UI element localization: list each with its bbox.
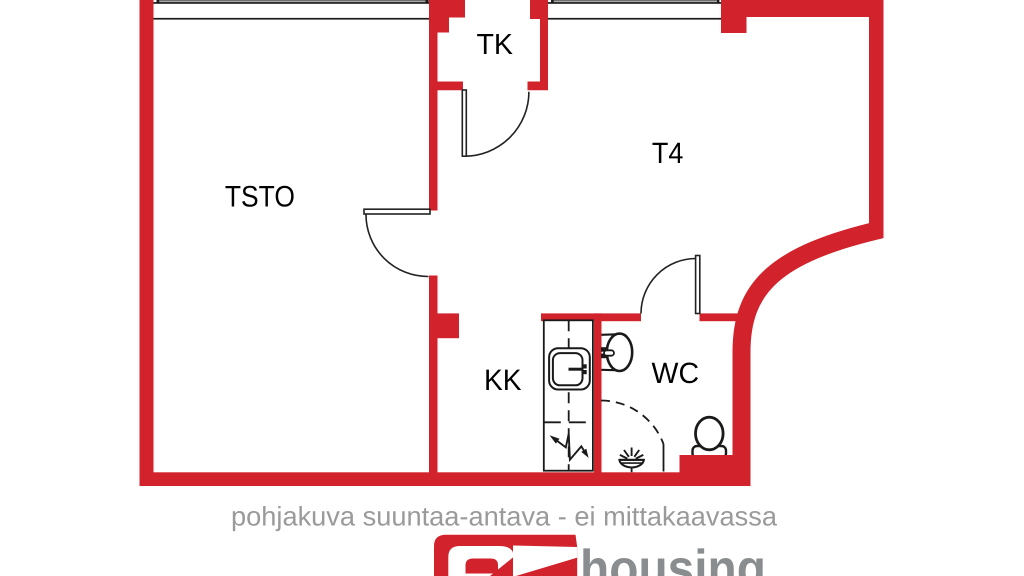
svg-text:housing: housing xyxy=(580,540,766,576)
svg-text:WC: WC xyxy=(652,357,700,390)
svg-text:TK: TK xyxy=(476,29,513,61)
svg-text:T4: T4 xyxy=(652,137,684,170)
svg-text:pohjakuva suuntaa-antava - ei: pohjakuva suuntaa-antava - ei mittakaava… xyxy=(231,502,778,532)
svg-text:TSTO: TSTO xyxy=(225,181,295,214)
svg-text:KK: KK xyxy=(484,364,522,397)
